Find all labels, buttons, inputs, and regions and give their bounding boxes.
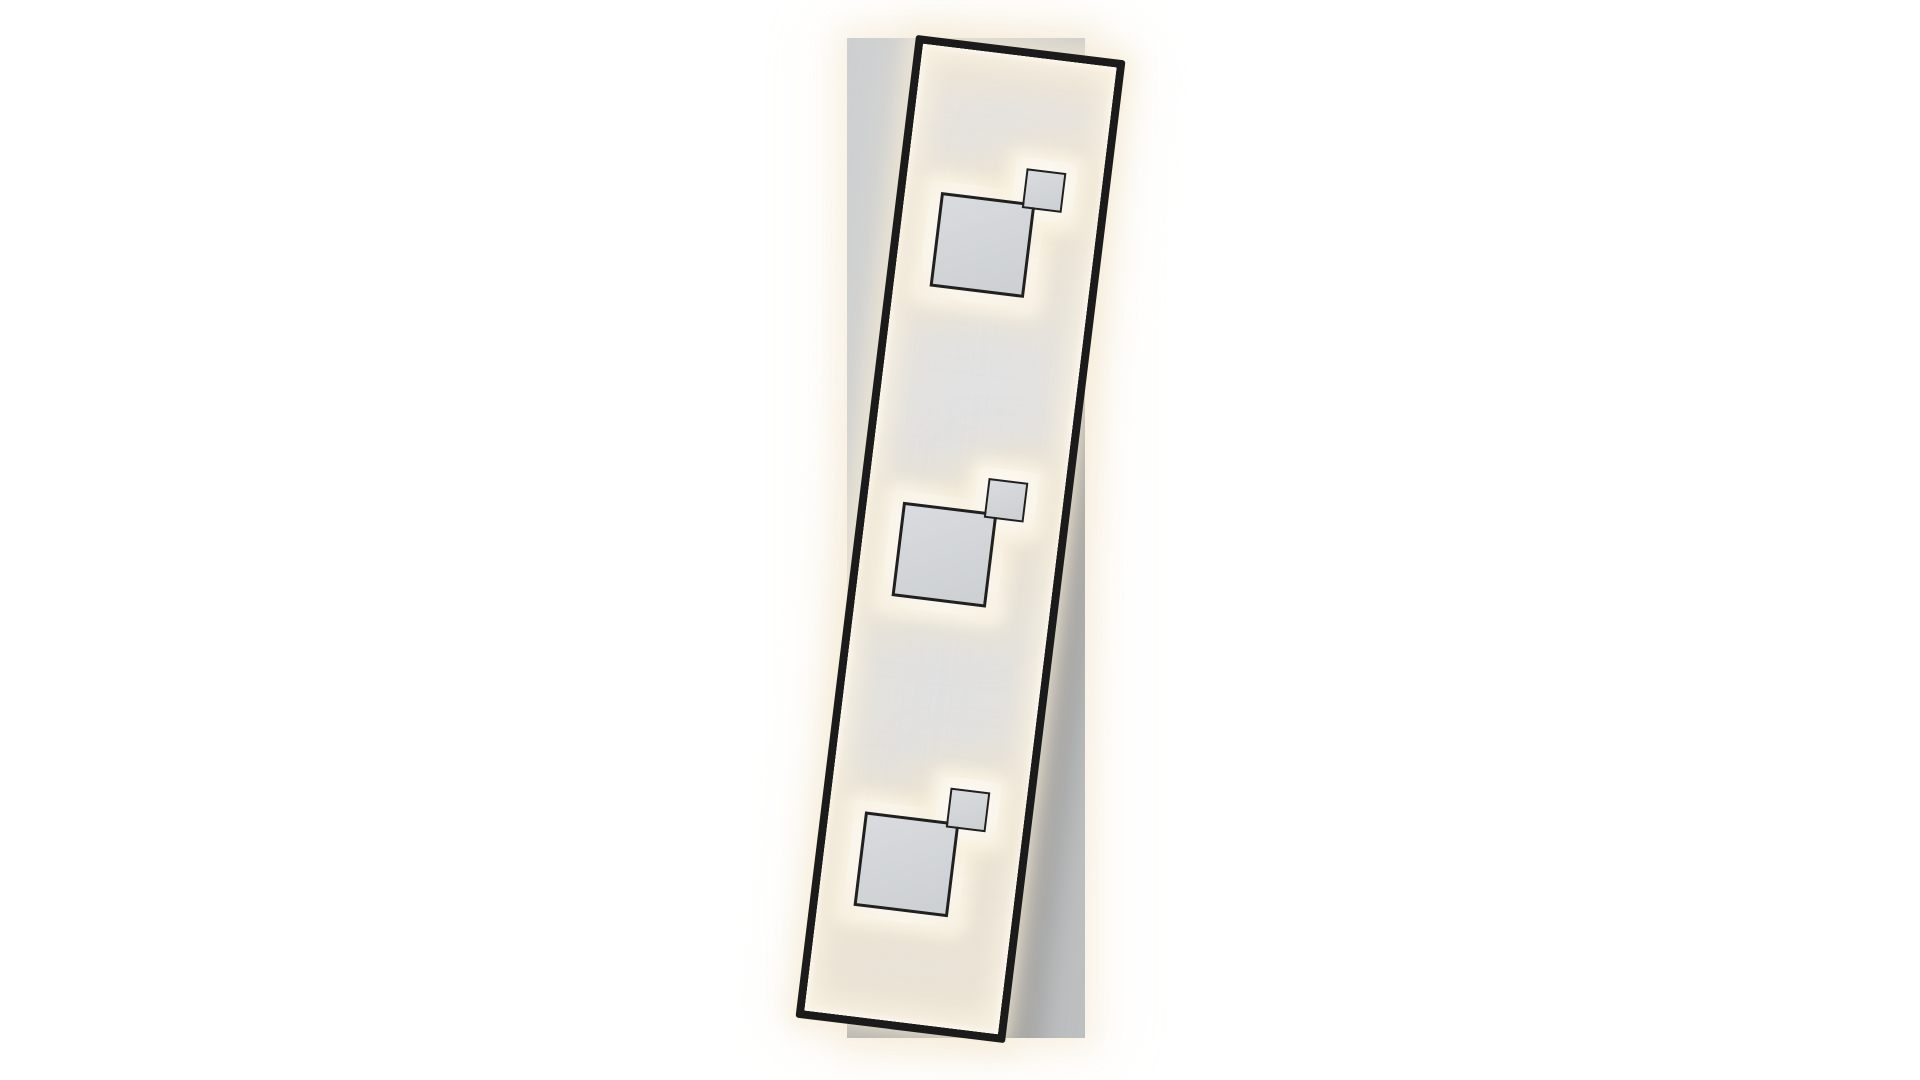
large-square	[892, 502, 998, 608]
large-square-glow-plate	[917, 180, 1047, 310]
small-square	[984, 478, 1029, 523]
small-square-glow-plate	[933, 775, 1002, 844]
small-square	[1022, 168, 1067, 213]
small-square-glow-plate	[972, 466, 1041, 535]
product-photo-stage	[0, 0, 1920, 1080]
large-square	[854, 811, 960, 917]
large-square-glow-plate	[841, 799, 971, 929]
small-square-glow-plate	[1010, 156, 1079, 225]
small-square	[946, 788, 991, 833]
large-square-glow-plate	[879, 489, 1009, 619]
large-square	[930, 192, 1036, 298]
